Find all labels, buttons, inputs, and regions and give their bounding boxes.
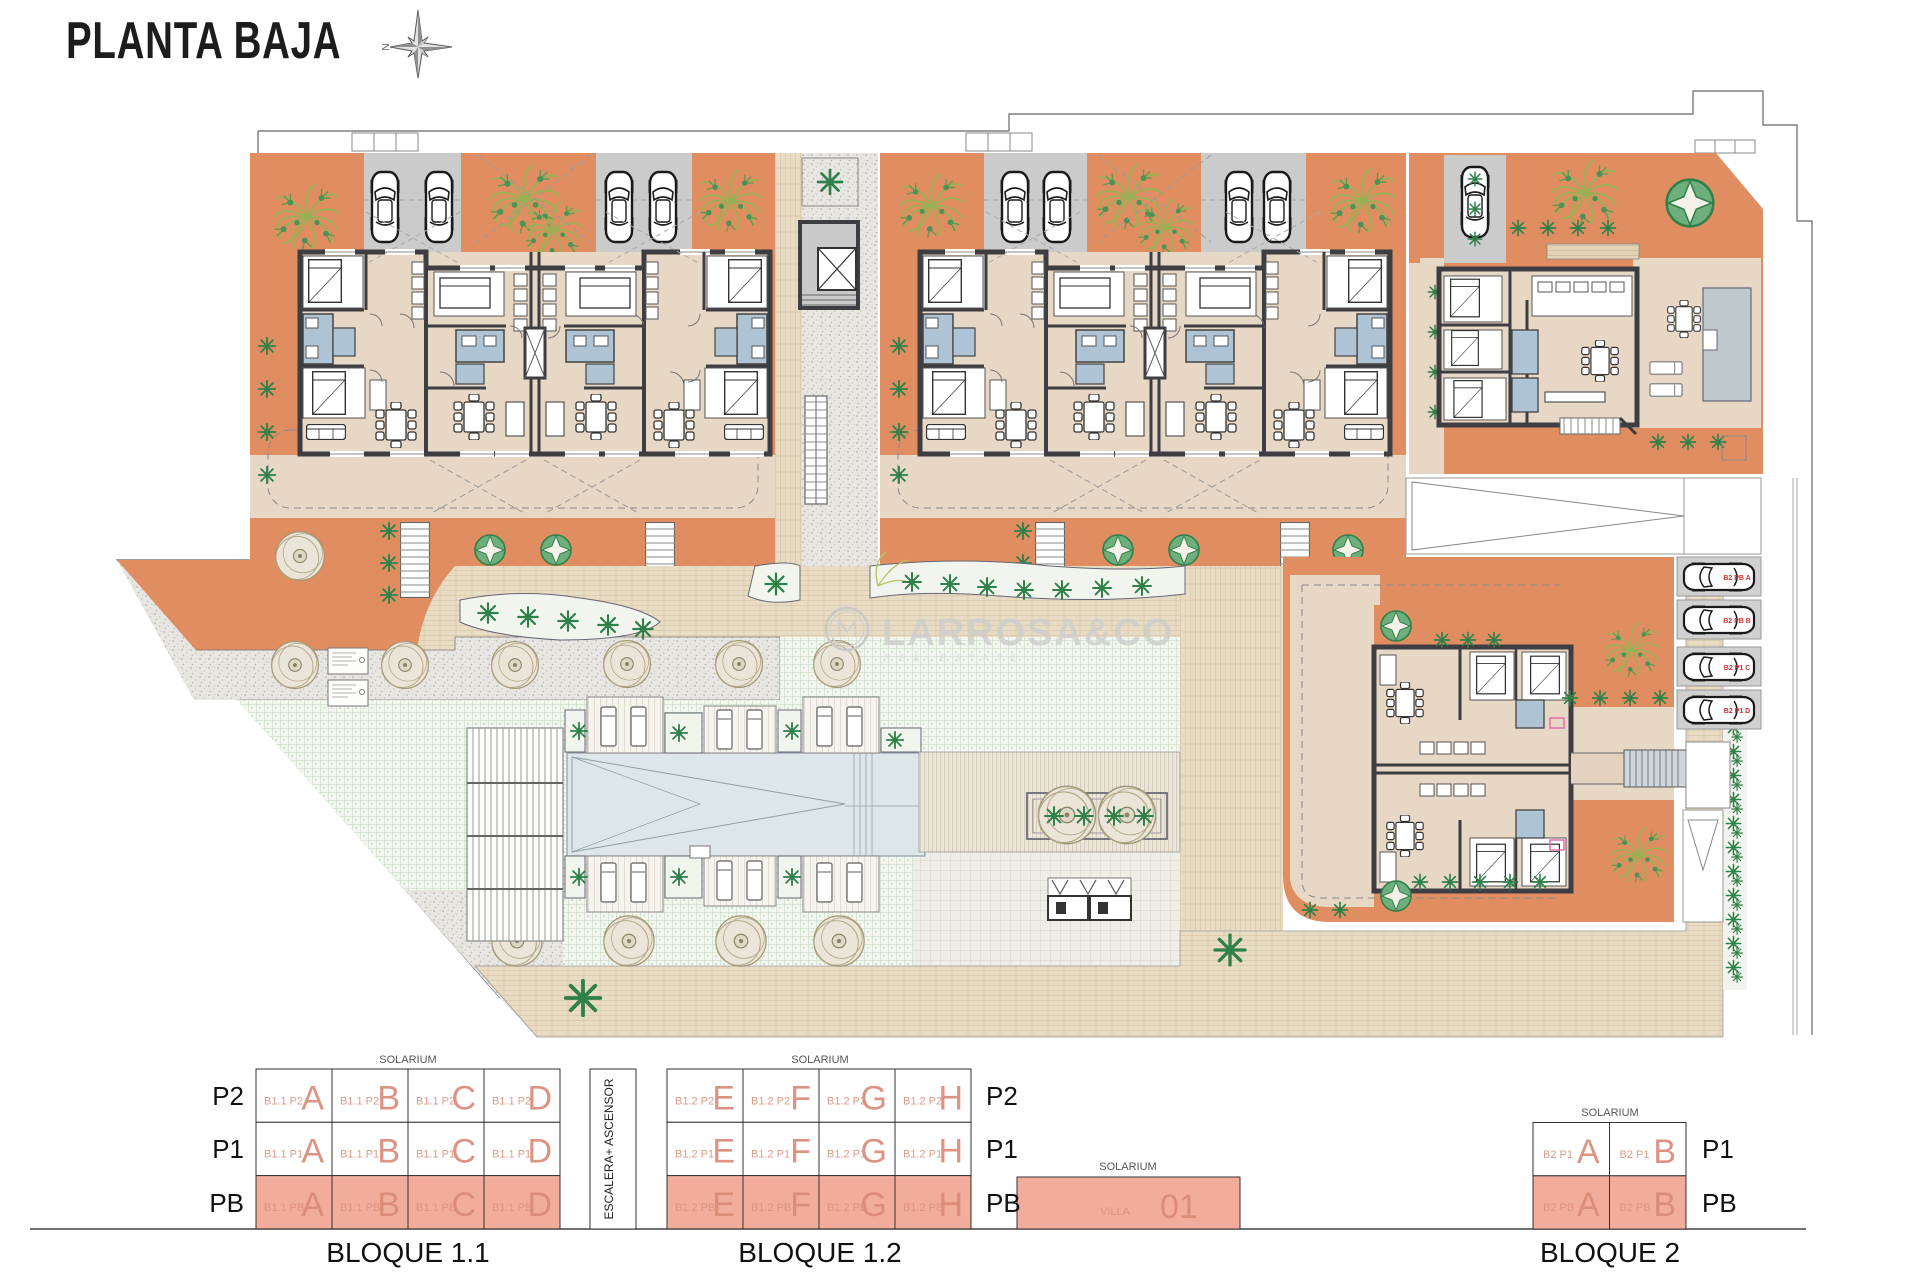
svg-text:B1.1 PB: B1.1 PB xyxy=(264,1202,304,1214)
svg-text:B2 PB A: B2 PB A xyxy=(1723,575,1750,582)
svg-text:SOLARIUM: SOLARIUM xyxy=(1099,1161,1156,1173)
svg-text:A: A xyxy=(301,1079,324,1117)
svg-text:B: B xyxy=(1653,1133,1676,1171)
svg-text:C: C xyxy=(451,1186,476,1224)
svg-text:PB: PB xyxy=(1702,1188,1737,1218)
svg-text:B1.1 P1: B1.1 P1 xyxy=(340,1149,379,1161)
svg-text:B1.2 PB: B1.2 PB xyxy=(675,1202,715,1214)
svg-text:B1.2 P2: B1.2 P2 xyxy=(675,1095,714,1107)
svg-text:F: F xyxy=(790,1133,811,1171)
svg-text:R E A L E S T A T E: R E A L E S T A T E xyxy=(884,653,1019,663)
svg-text:B1.1 PB: B1.1 PB xyxy=(492,1202,532,1214)
svg-text:BLOQUE 1.2: BLOQUE 1.2 xyxy=(738,1237,901,1268)
svg-text:B: B xyxy=(377,1186,400,1224)
svg-text:B1.2 P1: B1.2 P1 xyxy=(751,1149,790,1161)
svg-text:H: H xyxy=(938,1133,963,1171)
svg-text:A: A xyxy=(301,1186,324,1224)
svg-text:H: H xyxy=(938,1079,963,1117)
svg-text:BLOQUE 1.1: BLOQUE 1.1 xyxy=(326,1237,489,1268)
svg-text:01: 01 xyxy=(1160,1188,1198,1226)
svg-text:B2 PB B: B2 PB B xyxy=(1723,618,1751,625)
svg-text:LARROSA&CO: LARROSA&CO xyxy=(882,612,1174,654)
svg-text:B1.2 P2: B1.2 P2 xyxy=(903,1095,942,1107)
svg-text:B2 P1: B2 P1 xyxy=(1543,1149,1573,1161)
svg-text:E: E xyxy=(712,1186,735,1224)
svg-text:N: N xyxy=(381,43,392,50)
svg-text:B1.2 P2: B1.2 P2 xyxy=(751,1095,790,1107)
svg-text:B1.1 PB: B1.1 PB xyxy=(416,1202,456,1214)
svg-text:ESCALERA+ ASCENSOR: ESCALERA+ ASCENSOR xyxy=(602,1078,616,1219)
svg-text:E: E xyxy=(712,1079,735,1117)
svg-text:A: A xyxy=(1577,1133,1600,1171)
svg-text:C: C xyxy=(451,1079,476,1117)
svg-text:B1.2 P1: B1.2 P1 xyxy=(675,1149,714,1161)
svg-text:B1.1 P1: B1.1 P1 xyxy=(264,1149,303,1161)
svg-text:SOLARIUM: SOLARIUM xyxy=(1581,1107,1638,1119)
svg-text:G: G xyxy=(861,1133,887,1171)
svg-text:G: G xyxy=(861,1186,887,1224)
svg-text:D: D xyxy=(527,1079,552,1117)
svg-text:B1.2 PB: B1.2 PB xyxy=(903,1202,943,1214)
svg-text:F: F xyxy=(790,1186,811,1224)
svg-text:P1: P1 xyxy=(212,1134,244,1164)
svg-text:P1: P1 xyxy=(986,1134,1018,1164)
svg-text:E: E xyxy=(712,1133,735,1171)
svg-text:B1.2 P1: B1.2 P1 xyxy=(903,1149,942,1161)
svg-text:B1.1 P2: B1.1 P2 xyxy=(340,1095,379,1107)
svg-text:VILLA: VILLA xyxy=(1100,1206,1131,1218)
svg-text:F: F xyxy=(790,1079,811,1117)
svg-text:A: A xyxy=(1577,1186,1600,1224)
svg-text:SOLARIUM: SOLARIUM xyxy=(379,1054,436,1066)
svg-text:P2: P2 xyxy=(212,1081,244,1111)
svg-text:H: H xyxy=(938,1186,963,1224)
svg-text:SOLARIUM: SOLARIUM xyxy=(791,1054,848,1066)
svg-text:B2 PB: B2 PB xyxy=(1543,1202,1574,1214)
svg-text:P2: P2 xyxy=(986,1081,1018,1111)
svg-text:A: A xyxy=(301,1133,324,1171)
svg-text:B2 PB: B2 PB xyxy=(1620,1202,1651,1214)
svg-text:PLANTA BAJA: PLANTA BAJA xyxy=(66,11,341,69)
svg-text:B1.1 PB: B1.1 PB xyxy=(340,1202,380,1214)
svg-text:C: C xyxy=(451,1133,476,1171)
svg-text:B1.1 P1: B1.1 P1 xyxy=(416,1149,455,1161)
svg-text:B: B xyxy=(377,1079,400,1117)
svg-text:P1: P1 xyxy=(1702,1134,1734,1164)
svg-text:B: B xyxy=(1653,1186,1676,1224)
svg-text:BLOQUE 2: BLOQUE 2 xyxy=(1540,1237,1680,1268)
svg-text:B: B xyxy=(377,1133,400,1171)
svg-text:B2 P1: B2 P1 xyxy=(1620,1149,1650,1161)
svg-text:D: D xyxy=(527,1133,552,1171)
svg-text:B1.1 P2: B1.1 P2 xyxy=(492,1095,531,1107)
svg-text:PB: PB xyxy=(986,1188,1021,1218)
svg-text:B1.1 P2: B1.1 P2 xyxy=(416,1095,455,1107)
svg-text:PB: PB xyxy=(209,1188,244,1218)
svg-text:B1.1 P2: B1.1 P2 xyxy=(264,1095,303,1107)
svg-text:B2 P1 D: B2 P1 D xyxy=(1724,708,1750,715)
svg-text:B2 P1 C: B2 P1 C xyxy=(1724,665,1750,672)
svg-text:B1.2 PB: B1.2 PB xyxy=(751,1202,791,1214)
svg-text:D: D xyxy=(527,1186,552,1224)
svg-text:B1.1 P1: B1.1 P1 xyxy=(492,1149,531,1161)
svg-text:G: G xyxy=(861,1079,887,1117)
